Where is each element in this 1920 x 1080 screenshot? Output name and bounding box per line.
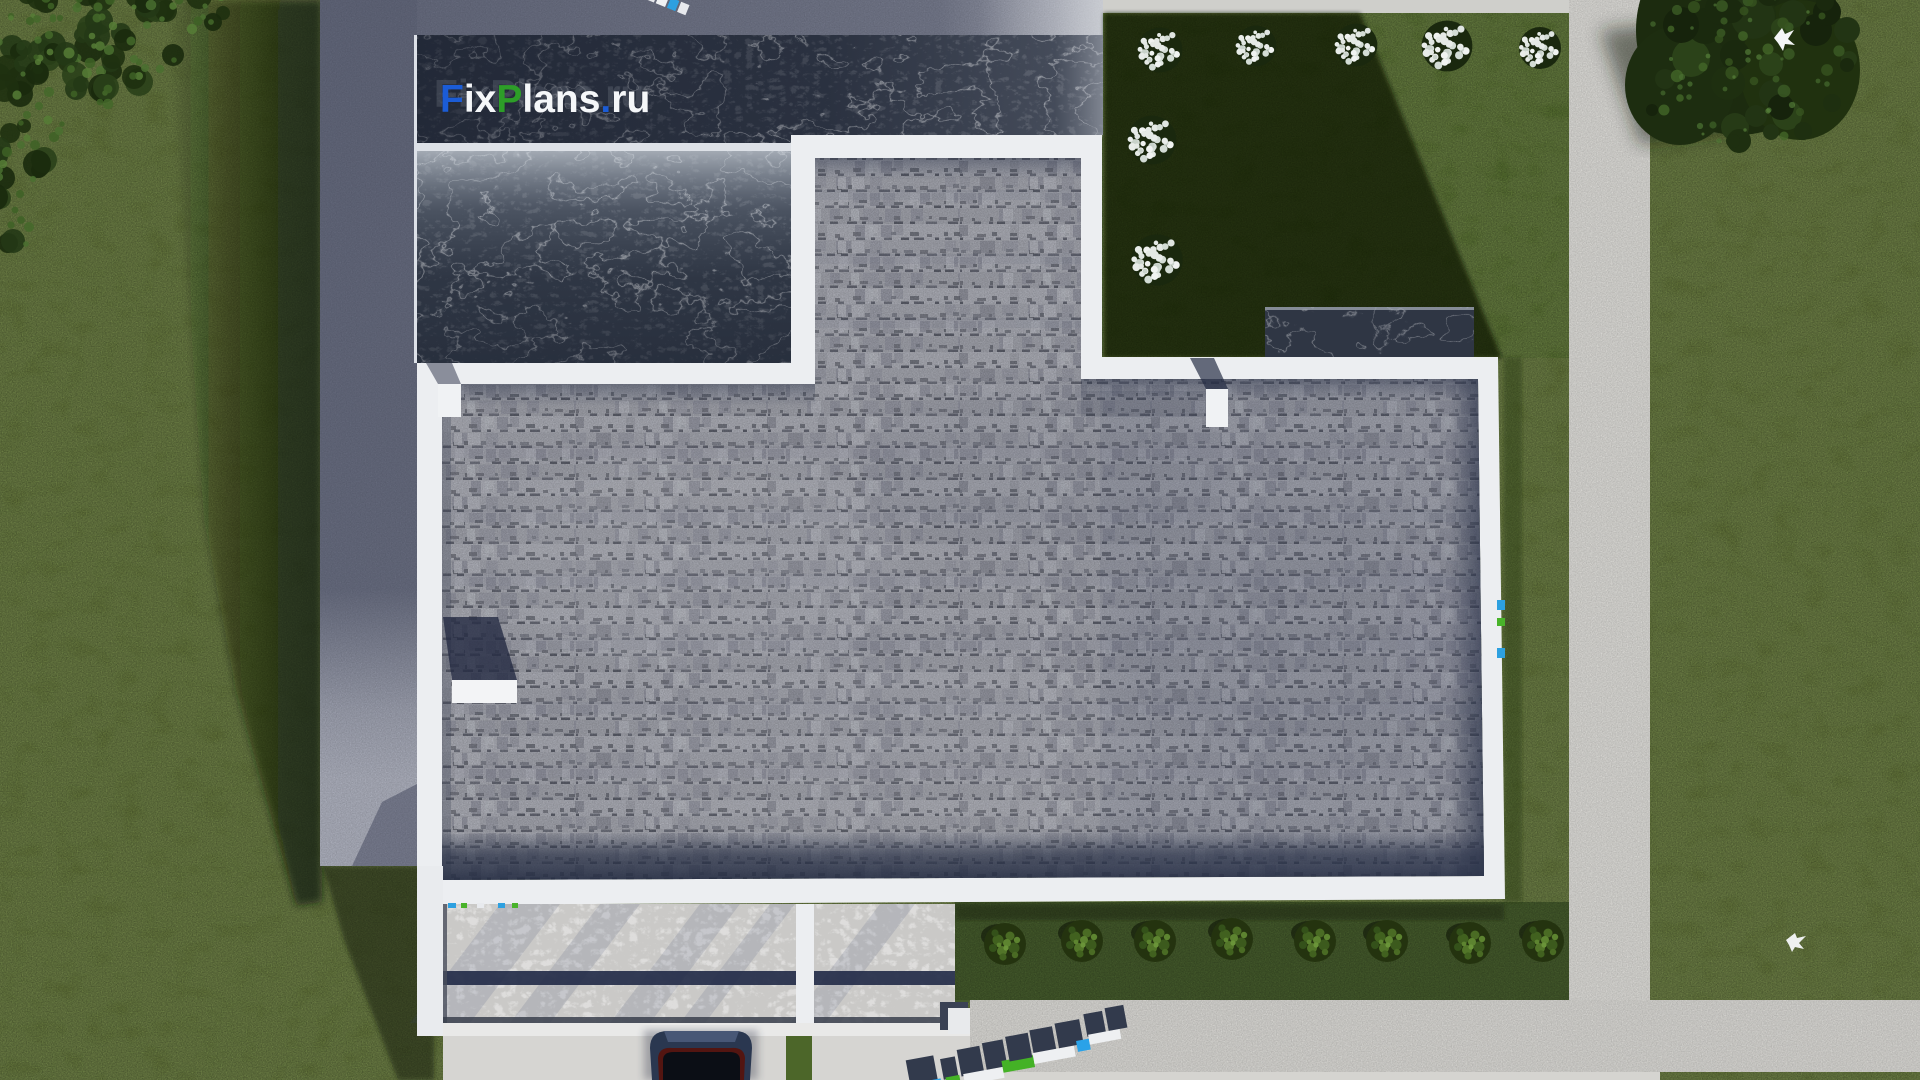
svg-text:FixPlans.ru: FixPlans.ru bbox=[440, 78, 650, 121]
